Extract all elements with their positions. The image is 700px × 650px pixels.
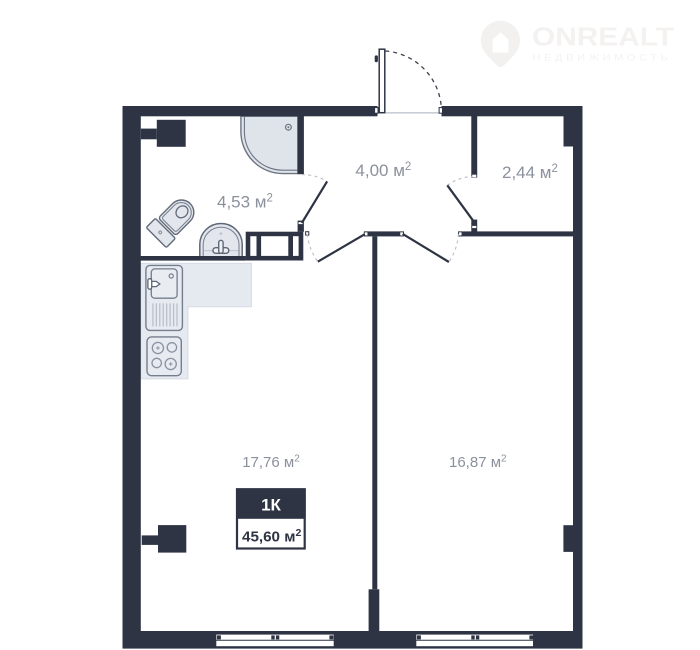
svg-text:4,00 м2: 4,00 м2 [355,161,411,180]
svg-text:45,60 м2: 45,60 м2 [242,527,301,546]
svg-text:НЕДВИЖИМОСТЬ: НЕДВИЖИМОСТЬ [533,53,672,64]
svg-text:16,87 м2: 16,87 м2 [449,454,507,472]
svg-text:ONREALT: ONREALT [532,22,674,52]
svg-text:2,44 м2: 2,44 м2 [502,163,558,182]
svg-text:1К: 1К [261,496,281,515]
svg-text:17,76 м2: 17,76 м2 [242,454,300,472]
svg-text:4,53 м2: 4,53 м2 [217,193,273,212]
